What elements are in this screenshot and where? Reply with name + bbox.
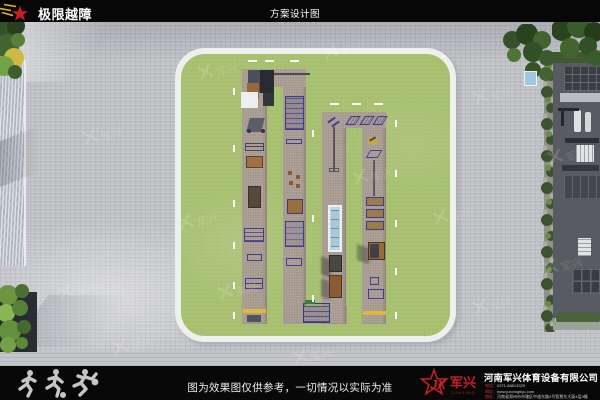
svg-text:JX: JX <box>430 377 447 392</box>
svg-text:JUNXING: JUNXING <box>451 390 476 395</box>
svg-text:军兴: 军兴 <box>450 375 476 390</box>
